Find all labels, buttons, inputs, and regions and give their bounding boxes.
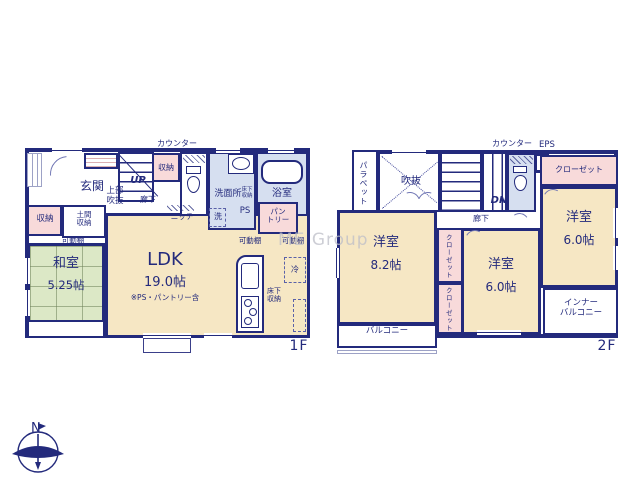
f1-upper-void-label: 上部吹抜 [100, 187, 130, 206]
f1-toilet-tank [186, 166, 201, 174]
f1-fridge-label: 冷 [286, 266, 304, 275]
f1-tatami-size: 5.25帖 [38, 279, 94, 292]
f2-counter-label: カウンター [490, 140, 534, 149]
f1-up-label: UP [124, 175, 152, 186]
f1-toilet-counter [183, 155, 205, 163]
f1-porch-steps [27, 153, 42, 187]
f2-bedroom-right-label: 洋室 [558, 211, 600, 226]
f1-cupboard-box [293, 299, 306, 332]
window [334, 248, 339, 278]
f2-balcony-edge [337, 350, 437, 354]
f1-shoe-cabinet [84, 153, 118, 169]
f2-closet-mid-upper-label: クローゼット [444, 232, 451, 280]
window [216, 148, 240, 153]
f1-kitchen-sink [241, 263, 259, 289]
f2-hallway-label: 廊下 [466, 215, 496, 224]
window [392, 150, 426, 154]
f1-ldk-size: 19.0帖 [135, 276, 195, 291]
window [613, 208, 618, 238]
f1-stove [241, 296, 259, 328]
f2-floor-label: 2F [592, 339, 622, 355]
window [25, 258, 30, 284]
f2-toilet-tank [513, 166, 527, 173]
f1-niche [167, 205, 194, 211]
f2-bedroom-mid-size: 6.0帖 [473, 281, 529, 294]
f1-niche-label: ニッチ [168, 213, 196, 221]
compass-icon: N [8, 410, 70, 476]
f2-eps-label: EPS [533, 141, 561, 151]
window [477, 330, 521, 335]
f1-hallway-label: 廊下 [134, 196, 162, 205]
f1-shelf-mid-label: 可動棚 [235, 237, 265, 245]
f1-doma-label: 土間収納 [70, 211, 98, 228]
f2-bedroom-right-size: 6.0帖 [556, 234, 602, 247]
compass-north-label: N [31, 421, 41, 436]
f1-vanity-sink [232, 157, 250, 170]
f1-counter-label: カウンター [153, 140, 201, 149]
f2-stairs [440, 152, 482, 212]
f2-bedroom-mid-label: 洋室 [475, 258, 527, 273]
f1-floor-label: 1F [285, 339, 313, 355]
watermark: ME Group [278, 230, 369, 250]
f1-kitchen-underfloor-label: 床下収納 [262, 288, 286, 304]
window [25, 290, 30, 316]
f1-ldk-label: LDK [135, 250, 195, 270]
f2-toilet-counter [510, 156, 533, 164]
f2-dn-label: DN [486, 195, 512, 206]
f1-pantry-label: パントリー [262, 208, 294, 225]
stove-burner [244, 317, 252, 325]
stove-burner [249, 308, 257, 316]
stove-burner [244, 299, 252, 307]
f1-ps-label: PS [236, 207, 254, 217]
f1-washer-label: 洗 [212, 213, 224, 222]
f1-entrance-opening [52, 148, 82, 153]
f1-storage-top-label: 収納 [154, 164, 178, 173]
f2-parapet-label: パラペット [358, 157, 367, 209]
f1-bathroom-label: 浴室 [266, 188, 298, 199]
f2-inner-balcony-label: インナーバルコニー [550, 299, 612, 318]
f1-washroom-underfloor-label: 床下収納 [239, 187, 255, 199]
window [268, 148, 294, 153]
f2-balcony-label: バルコニー [352, 327, 422, 337]
f2-void-label: 吹抜 [396, 176, 426, 187]
f1-bathtub [261, 160, 303, 184]
f1-engawa [27, 320, 105, 338]
f1-tatami-label: 和室 [42, 257, 90, 272]
f1-ldk-note: ※PS・パントリー含 [118, 294, 212, 302]
f2-closet-mid-lower-label: クローゼット [444, 286, 451, 332]
f2-bedroom-left-size: 8.2帖 [356, 259, 416, 272]
window [613, 246, 618, 270]
f2-closet-right-label: クローゼット [546, 166, 612, 175]
floor-plan-canvas: カウンター 玄関 上部吹抜 UP 廊下 収納 洗面所 床下収納 浴室 洗 PS … [0, 0, 640, 480]
f1-entry-step [143, 338, 191, 353]
f1-shelf-left-label: 可動棚 [58, 237, 88, 245]
f1-storage-left-label: 収納 [32, 215, 58, 225]
window [204, 333, 232, 338]
